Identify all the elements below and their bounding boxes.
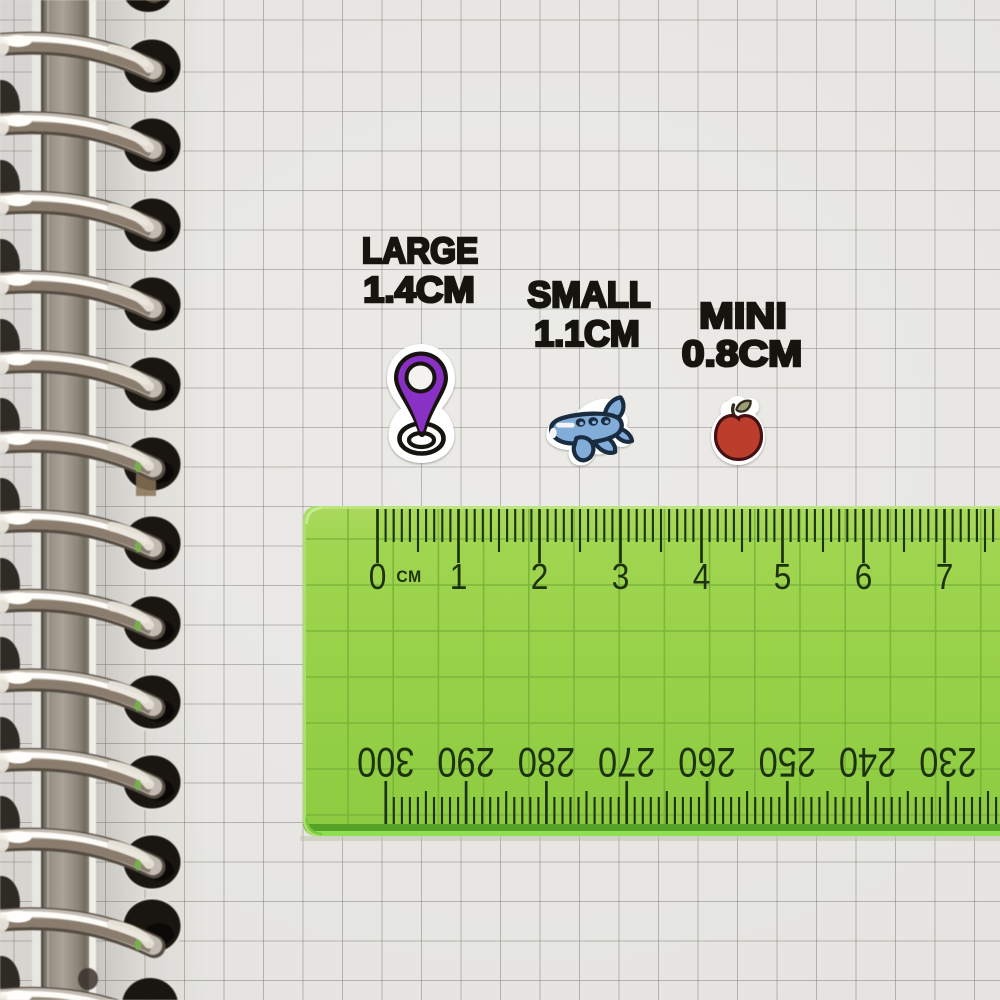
svg-text:240: 240: [839, 738, 896, 785]
svg-text:2: 2: [531, 557, 549, 597]
svg-text:250: 250: [759, 738, 816, 785]
svg-text:230: 230: [919, 738, 976, 785]
svg-text:300: 300: [357, 738, 414, 785]
svg-text:260: 260: [678, 738, 735, 785]
svg-text:7: 7: [936, 557, 954, 597]
svg-text:4: 4: [693, 557, 711, 597]
svg-text:CM: CM: [396, 568, 421, 586]
svg-text:0: 0: [369, 557, 387, 597]
svg-text:290: 290: [437, 738, 494, 785]
svg-text:3: 3: [612, 557, 630, 597]
svg-text:280: 280: [518, 738, 575, 785]
svg-text:1: 1: [450, 557, 468, 597]
svg-text:6: 6: [855, 557, 873, 597]
svg-text:270: 270: [598, 738, 655, 785]
svg-text:5: 5: [774, 557, 792, 597]
